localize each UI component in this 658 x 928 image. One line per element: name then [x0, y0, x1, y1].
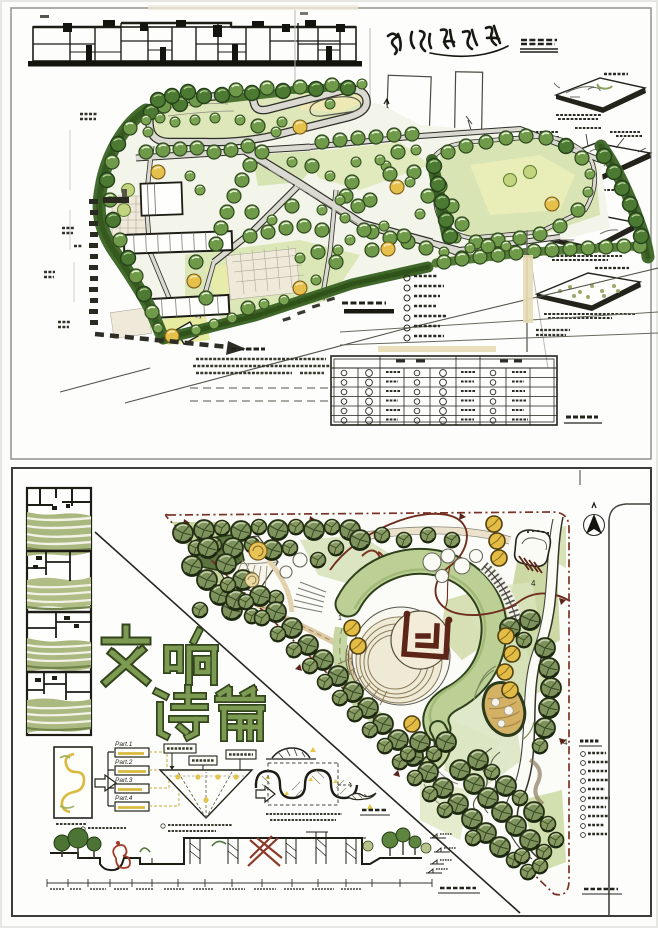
svg-text:4: 4	[531, 579, 536, 588]
svg-text:Part.1: Part.1	[115, 741, 133, 748]
svg-text:Part.4: Part.4	[115, 795, 133, 802]
svg-text:4: 4	[563, 738, 568, 747]
svg-text:1: 1	[338, 615, 342, 622]
svg-text:Part.2: Part.2	[115, 759, 133, 766]
svg-text:Part.3: Part.3	[115, 777, 133, 784]
